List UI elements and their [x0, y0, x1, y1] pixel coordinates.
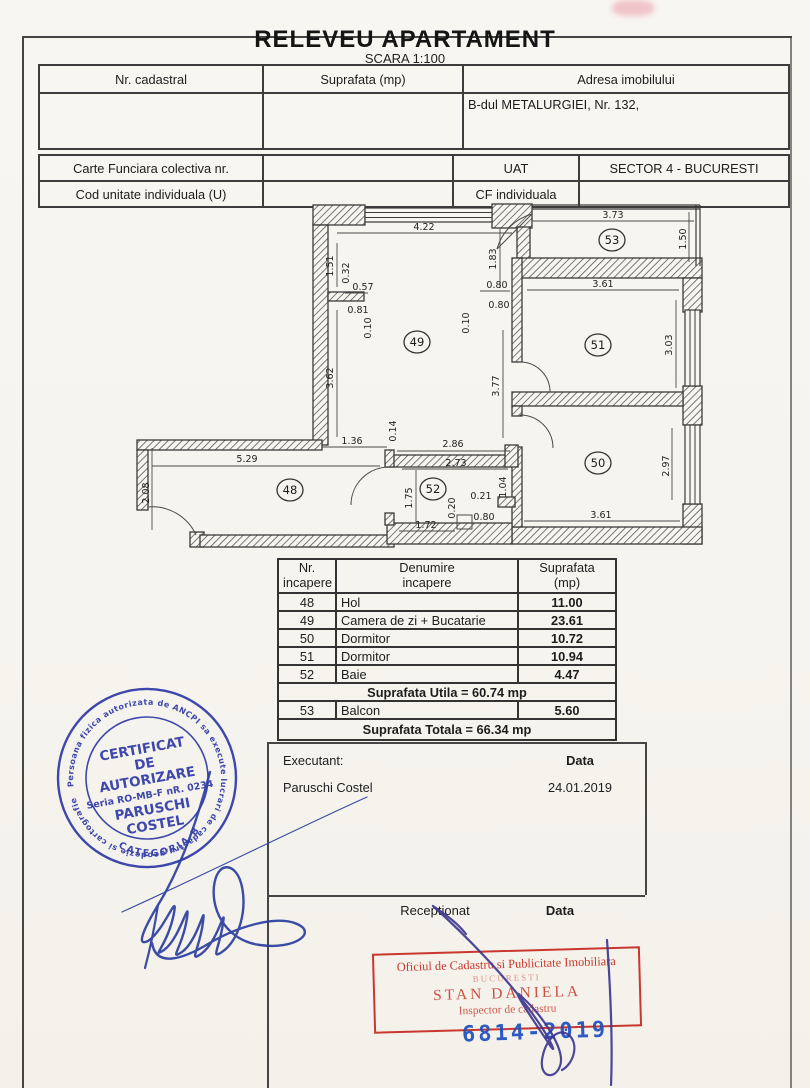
exec-box-right — [645, 742, 647, 895]
table-row: 50 Dormitor 10.72 — [278, 629, 616, 647]
frame-right — [790, 36, 792, 1088]
svg-text:2.86: 2.86 — [442, 439, 463, 450]
svg-text:3.61: 3.61 — [592, 279, 613, 290]
uat-label: UAT — [453, 155, 579, 181]
exec-box-top — [267, 742, 645, 744]
svg-text:0.10: 0.10 — [461, 312, 472, 333]
table-row: 52 Baie 4.47 — [278, 665, 616, 683]
svg-text:1.04: 1.04 — [498, 476, 509, 497]
floor-plan: 4.22 3.73 1.50 1.51 0.32 0.57 0.81 0.10 … — [130, 198, 710, 550]
room-table-header-suprafata: Suprafata (mp) — [518, 559, 616, 593]
cadastral-header-nr: Nr. cadastral — [39, 65, 263, 93]
svg-text:0.21: 0.21 — [470, 491, 491, 502]
table-row: 48 Hol 11.00 — [278, 593, 616, 611]
room-label-49: 49 — [404, 331, 430, 353]
svg-text:0.20: 0.20 — [447, 497, 458, 518]
cadastral-header-adresa: Adresa imobilului — [463, 65, 789, 93]
address-value: B-dul METALURGIEI, Nr. 132, — [463, 93, 789, 149]
uat-value: SECTOR 4 - BUCURESTI — [579, 155, 789, 181]
svg-text:2.73: 2.73 — [445, 458, 466, 469]
svg-text:0.14: 0.14 — [388, 420, 399, 441]
svg-text:0.80: 0.80 — [486, 280, 507, 291]
svg-text:3.61: 3.61 — [590, 510, 611, 521]
cadastral-table: Nr. cadastral Suprafata (mp) Adresa imob… — [38, 64, 790, 150]
room-table-header-denumire: Denumire incapere — [336, 559, 518, 593]
cadastral-header-suprafata: Suprafata (mp) — [263, 65, 463, 93]
svg-text:0.10: 0.10 — [363, 317, 374, 338]
svg-text:1.36: 1.36 — [341, 436, 362, 447]
svg-text:4.22: 4.22 — [413, 222, 434, 233]
svg-text:0.81: 0.81 — [347, 305, 368, 316]
svg-text:49: 49 — [410, 335, 425, 349]
svg-text:1.72: 1.72 — [415, 520, 436, 531]
room-table-header-nr: Nr. incapere — [278, 559, 336, 593]
executant-data-label: Data — [530, 753, 630, 768]
table-row: 53 Balcon 5.60 — [278, 701, 616, 719]
svg-text:5.29: 5.29 — [236, 454, 257, 465]
svg-text:1.75: 1.75 — [404, 487, 415, 508]
room-label-53: 53 — [599, 229, 625, 251]
svg-text:2.97: 2.97 — [661, 455, 672, 476]
room-label-51: 51 — [585, 334, 611, 356]
svg-text:52: 52 — [426, 482, 441, 496]
table-row: 51 Dormitor 10.94 — [278, 647, 616, 665]
room-label-52: 52 — [420, 478, 446, 500]
room-label-50: 50 — [585, 452, 611, 474]
svg-text:3.73: 3.73 — [602, 210, 623, 221]
svg-text:50: 50 — [591, 456, 606, 470]
svg-text:0.32: 0.32 — [341, 262, 352, 283]
svg-text:1.51: 1.51 — [325, 255, 336, 276]
svg-text:1.83: 1.83 — [488, 248, 499, 269]
table-row: 49 Camera de zi + Bucatarie 23.61 — [278, 611, 616, 629]
receptionat-signature — [408, 888, 638, 1088]
executant-date: 24.01.2019 — [530, 780, 630, 795]
carte-funciara-value — [263, 155, 453, 181]
svg-text:1.50: 1.50 — [678, 228, 689, 249]
svg-text:53: 53 — [605, 233, 620, 247]
frame-left — [22, 36, 24, 1088]
svg-text:51: 51 — [591, 338, 606, 352]
svg-text:0.80: 0.80 — [473, 512, 494, 523]
cadastral-suprafata-value — [263, 93, 463, 149]
svg-text:3.62: 3.62 — [325, 367, 336, 388]
svg-text:3.77: 3.77 — [491, 375, 502, 396]
room-areas-table: Nr. incapere Denumire incapere Suprafata… — [277, 558, 617, 741]
svg-text:48: 48 — [283, 483, 298, 497]
scanned-document-page: RELEVEU APARTAMENT SCARA 1:100 Nr. cadas… — [0, 0, 810, 1088]
cadastral-nr-value — [39, 93, 263, 149]
suprafata-utila-row: Suprafata Utila = 60.74 mp — [278, 683, 616, 701]
svg-text:0.57: 0.57 — [352, 282, 373, 293]
svg-text:3.03: 3.03 — [664, 334, 675, 355]
plan-walls — [137, 204, 702, 547]
svg-text:2.08: 2.08 — [141, 482, 152, 503]
carte-funciara-label: Carte Funciara colectiva nr. — [39, 155, 263, 181]
room-label-48: 48 — [277, 479, 303, 501]
scan-smudge — [612, 0, 654, 16]
page-title: RELEVEU APARTAMENT — [0, 26, 810, 54]
svg-text:0.80: 0.80 — [488, 300, 509, 311]
suprafata-totala-row: Suprafata Totala = 66.34 mp — [278, 719, 616, 740]
executant-signature — [88, 755, 388, 970]
